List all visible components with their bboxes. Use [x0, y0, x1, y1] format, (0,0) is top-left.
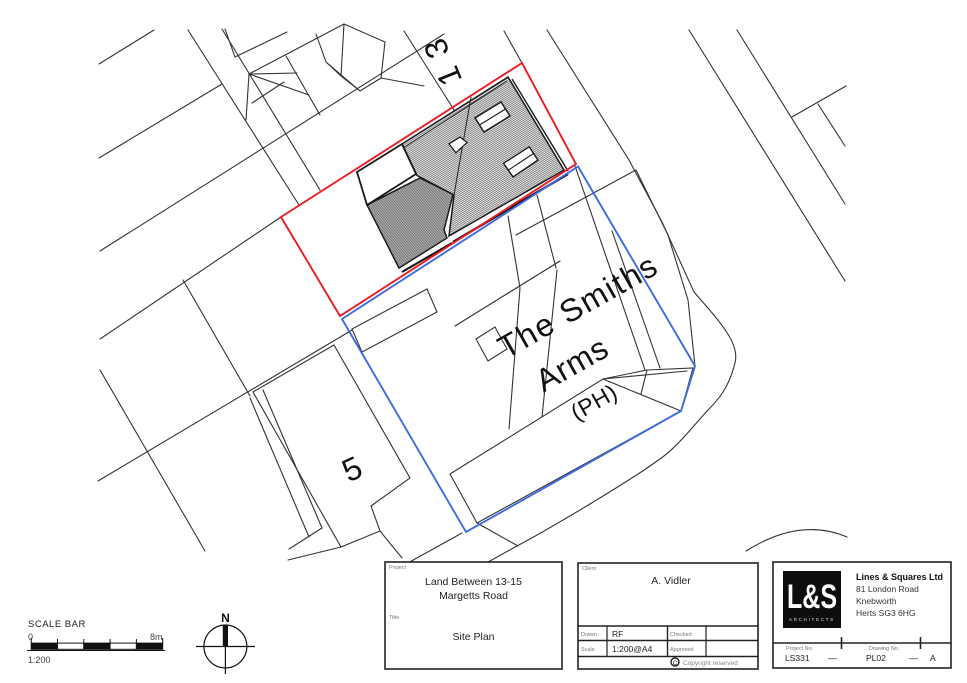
svg-text:1:200: 1:200: [28, 655, 51, 665]
svg-text:Project: Project: [389, 565, 407, 571]
svg-text:SCALE BAR: SCALE BAR: [28, 619, 86, 630]
svg-text:Margetts Road: Margetts Road: [439, 590, 508, 602]
svg-text:A. Vidler: A. Vidler: [651, 575, 691, 587]
svg-text:—: —: [828, 653, 837, 663]
svg-text:Scale: Scale: [581, 647, 595, 653]
svg-text:Drawing No.: Drawing No.: [869, 646, 900, 652]
svg-text:—: —: [909, 653, 918, 663]
svg-text:RF: RF: [612, 629, 623, 639]
svg-text:N: N: [221, 611, 230, 625]
svg-text:LS331: LS331: [785, 653, 810, 663]
svg-text:Checked: Checked: [670, 632, 692, 638]
svg-text:ARCHITECTS: ARCHITECTS: [789, 617, 835, 622]
svg-text:Herts SG3 6HG: Herts SG3 6HG: [856, 608, 916, 618]
svg-text:Site Plan: Site Plan: [452, 631, 494, 643]
svg-text:Title: Title: [389, 615, 399, 621]
svg-text:81 London Road: 81 London Road: [856, 584, 919, 594]
svg-text:Knebworth: Knebworth: [856, 596, 897, 606]
svg-text:Approved: Approved: [670, 647, 694, 653]
svg-text:Drawn: Drawn: [581, 632, 597, 638]
svg-text:8m: 8m: [150, 632, 163, 642]
svg-text:Land Between 13-15: Land Between 13-15: [425, 576, 522, 588]
svg-text:C: C: [673, 660, 678, 667]
svg-text:Project No.: Project No.: [786, 646, 814, 652]
svg-text:Client: Client: [582, 566, 597, 572]
svg-text:Lines & Squares Ltd: Lines & Squares Ltd: [856, 572, 943, 582]
svg-text:A: A: [930, 653, 936, 663]
svg-text:PL02: PL02: [866, 653, 886, 663]
svg-text:0: 0: [28, 632, 33, 642]
svg-text:Copyright reserved: Copyright reserved: [683, 660, 738, 667]
svg-text:L&S: L&S: [787, 578, 837, 616]
svg-text:1:200@A4: 1:200@A4: [612, 644, 653, 654]
